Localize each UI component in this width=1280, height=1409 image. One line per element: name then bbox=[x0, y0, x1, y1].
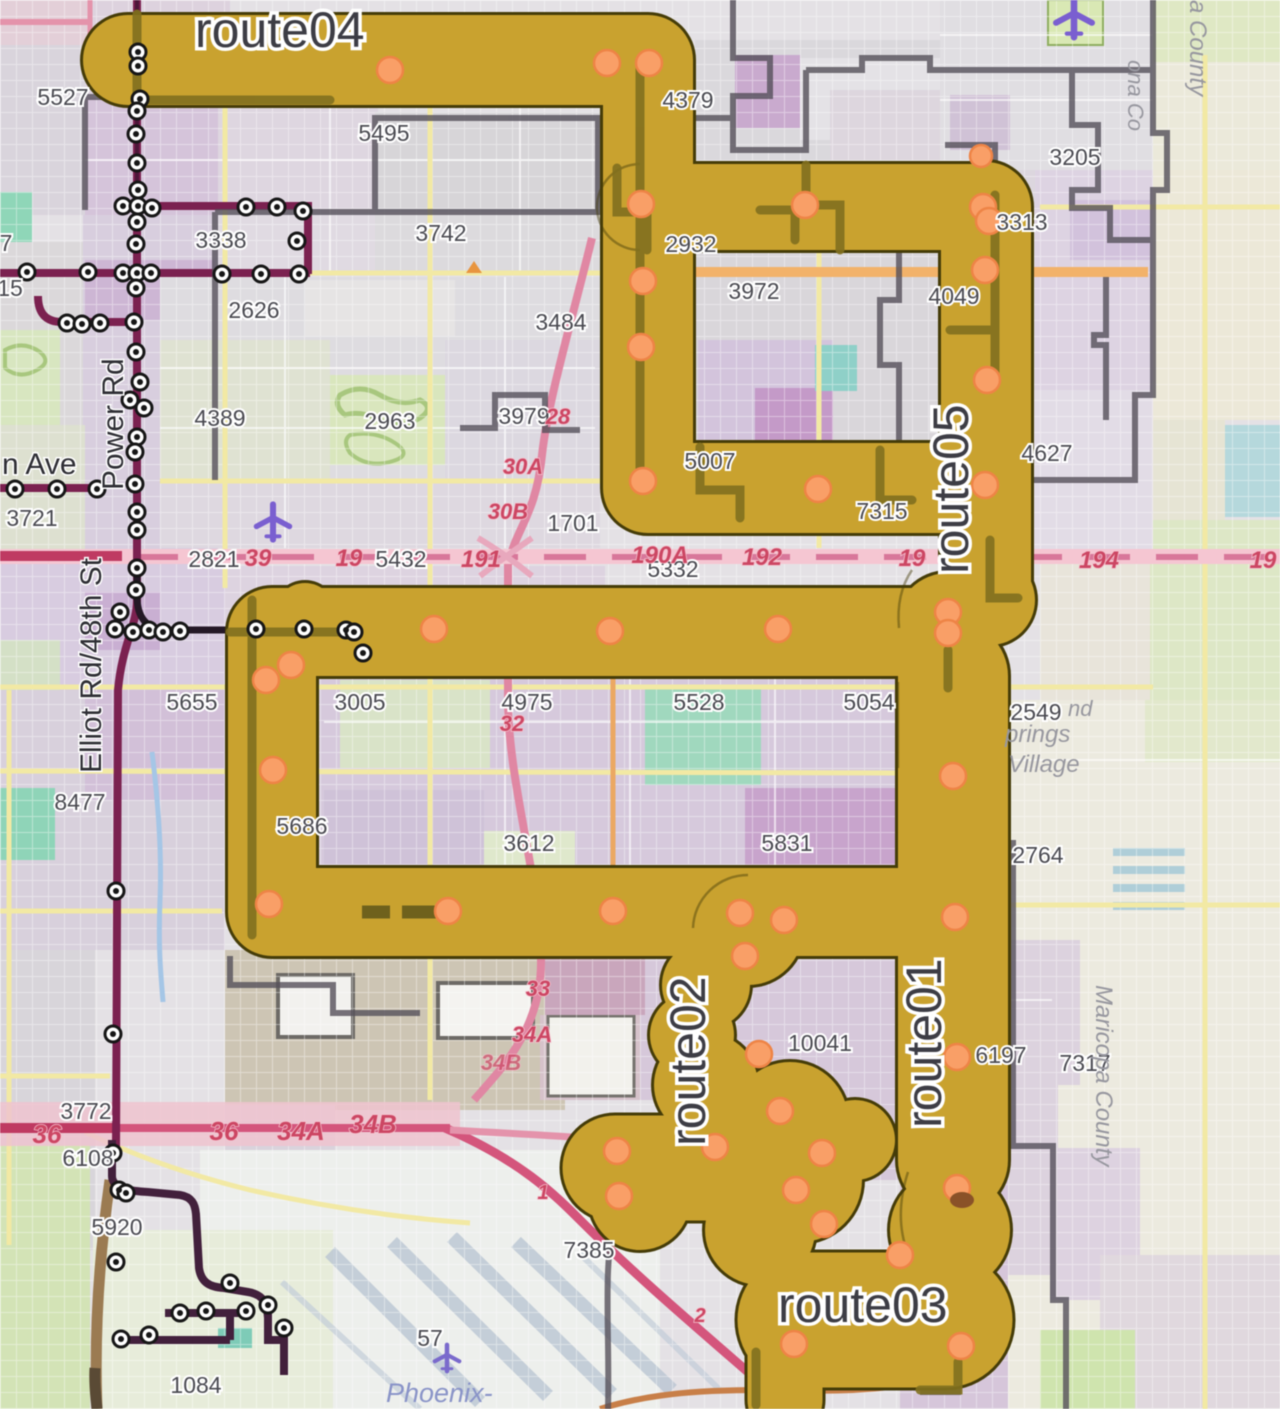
svg-text:route05: route05 bbox=[923, 404, 979, 574]
svg-text:a County: a County bbox=[1184, 0, 1211, 98]
svg-text:192: 192 bbox=[742, 544, 783, 571]
svg-text:7385: 7385 bbox=[563, 1237, 614, 1263]
svg-text:3313: 3313 bbox=[996, 209, 1047, 235]
svg-text:34A: 34A bbox=[277, 1116, 325, 1146]
svg-text:3772: 3772 bbox=[60, 1098, 111, 1124]
svg-text:19: 19 bbox=[1250, 547, 1277, 574]
svg-text:route03: route03 bbox=[778, 1277, 948, 1333]
svg-text:3979: 3979 bbox=[498, 403, 549, 429]
svg-text:15: 15 bbox=[0, 275, 23, 301]
svg-text:5528: 5528 bbox=[673, 689, 724, 715]
svg-text:36: 36 bbox=[210, 1116, 239, 1146]
svg-text:2764: 2764 bbox=[1012, 842, 1063, 868]
svg-text:5054: 5054 bbox=[843, 689, 894, 715]
svg-text:5920: 5920 bbox=[91, 1214, 142, 1240]
svg-text:5686: 5686 bbox=[276, 813, 327, 839]
svg-text:5495: 5495 bbox=[358, 120, 409, 146]
svg-text:ona Co: ona Co bbox=[1123, 60, 1148, 131]
svg-text:5655: 5655 bbox=[166, 689, 217, 715]
svg-text:5432: 5432 bbox=[375, 546, 426, 572]
svg-text:Elliot Rd/48th St: Elliot Rd/48th St bbox=[75, 557, 108, 773]
svg-text:4389: 4389 bbox=[194, 405, 245, 431]
svg-text:34B: 34B bbox=[349, 1109, 397, 1139]
svg-text:5527: 5527 bbox=[37, 84, 88, 110]
svg-text:nd: nd bbox=[1068, 696, 1093, 721]
svg-text:Maricopa County: Maricopa County bbox=[1090, 985, 1117, 1168]
svg-text:2821: 2821 bbox=[188, 546, 239, 572]
svg-text:3205: 3205 bbox=[1049, 144, 1100, 170]
svg-text:191: 191 bbox=[461, 546, 501, 573]
svg-text:n Ave: n Ave bbox=[2, 448, 77, 481]
svg-text:2626: 2626 bbox=[228, 297, 279, 323]
svg-text:194: 194 bbox=[1079, 547, 1119, 574]
svg-text:34B: 34B bbox=[481, 1050, 521, 1075]
svg-text:36: 36 bbox=[33, 1119, 62, 1149]
svg-text:3742: 3742 bbox=[415, 220, 466, 246]
svg-text:4627: 4627 bbox=[1021, 440, 1072, 466]
svg-text:prings: prings bbox=[1004, 721, 1070, 748]
svg-text:19: 19 bbox=[336, 545, 363, 572]
svg-text:3721: 3721 bbox=[6, 505, 57, 531]
svg-text:3484: 3484 bbox=[535, 309, 586, 335]
svg-text:32: 32 bbox=[500, 711, 525, 736]
svg-text:6108: 6108 bbox=[62, 1145, 113, 1171]
svg-text:34A: 34A bbox=[512, 1022, 552, 1047]
svg-text:30A: 30A bbox=[503, 454, 543, 479]
svg-text:1: 1 bbox=[537, 1182, 548, 1204]
svg-text:190A: 190A bbox=[631, 542, 688, 569]
svg-text:39: 39 bbox=[245, 545, 272, 572]
svg-text:2963: 2963 bbox=[364, 408, 415, 434]
svg-text:route04: route04 bbox=[195, 2, 365, 58]
svg-text:1084: 1084 bbox=[170, 1372, 221, 1398]
svg-text:28: 28 bbox=[545, 404, 571, 429]
svg-text:8477: 8477 bbox=[54, 789, 105, 815]
svg-text:5007: 5007 bbox=[684, 448, 735, 474]
svg-text:3005: 3005 bbox=[334, 689, 385, 715]
svg-text:3612: 3612 bbox=[503, 830, 554, 856]
svg-text:2932: 2932 bbox=[665, 231, 716, 257]
svg-text:3338: 3338 bbox=[195, 227, 246, 253]
svg-text:route01: route01 bbox=[896, 958, 952, 1128]
svg-text:10041: 10041 bbox=[788, 1030, 852, 1056]
svg-text:7315: 7315 bbox=[856, 498, 907, 524]
svg-text:33: 33 bbox=[526, 976, 550, 1001]
svg-text:Village: Village bbox=[1008, 751, 1080, 778]
svg-text:30B: 30B bbox=[488, 499, 528, 524]
svg-text:4379: 4379 bbox=[662, 87, 713, 113]
svg-text:57: 57 bbox=[417, 1325, 443, 1351]
svg-text:route02: route02 bbox=[660, 976, 716, 1146]
svg-text:3972: 3972 bbox=[728, 278, 779, 304]
svg-text:1701: 1701 bbox=[547, 510, 598, 536]
svg-text:5831: 5831 bbox=[761, 830, 812, 856]
svg-text:6197: 6197 bbox=[975, 1042, 1026, 1068]
svg-text:2: 2 bbox=[693, 1305, 705, 1327]
svg-text:19: 19 bbox=[899, 545, 926, 572]
svg-text:Power Rd: Power Rd bbox=[97, 358, 130, 490]
svg-text:Phoenix-: Phoenix- bbox=[386, 1378, 493, 1408]
svg-text:7: 7 bbox=[0, 230, 12, 256]
svg-text:4049: 4049 bbox=[928, 283, 979, 309]
